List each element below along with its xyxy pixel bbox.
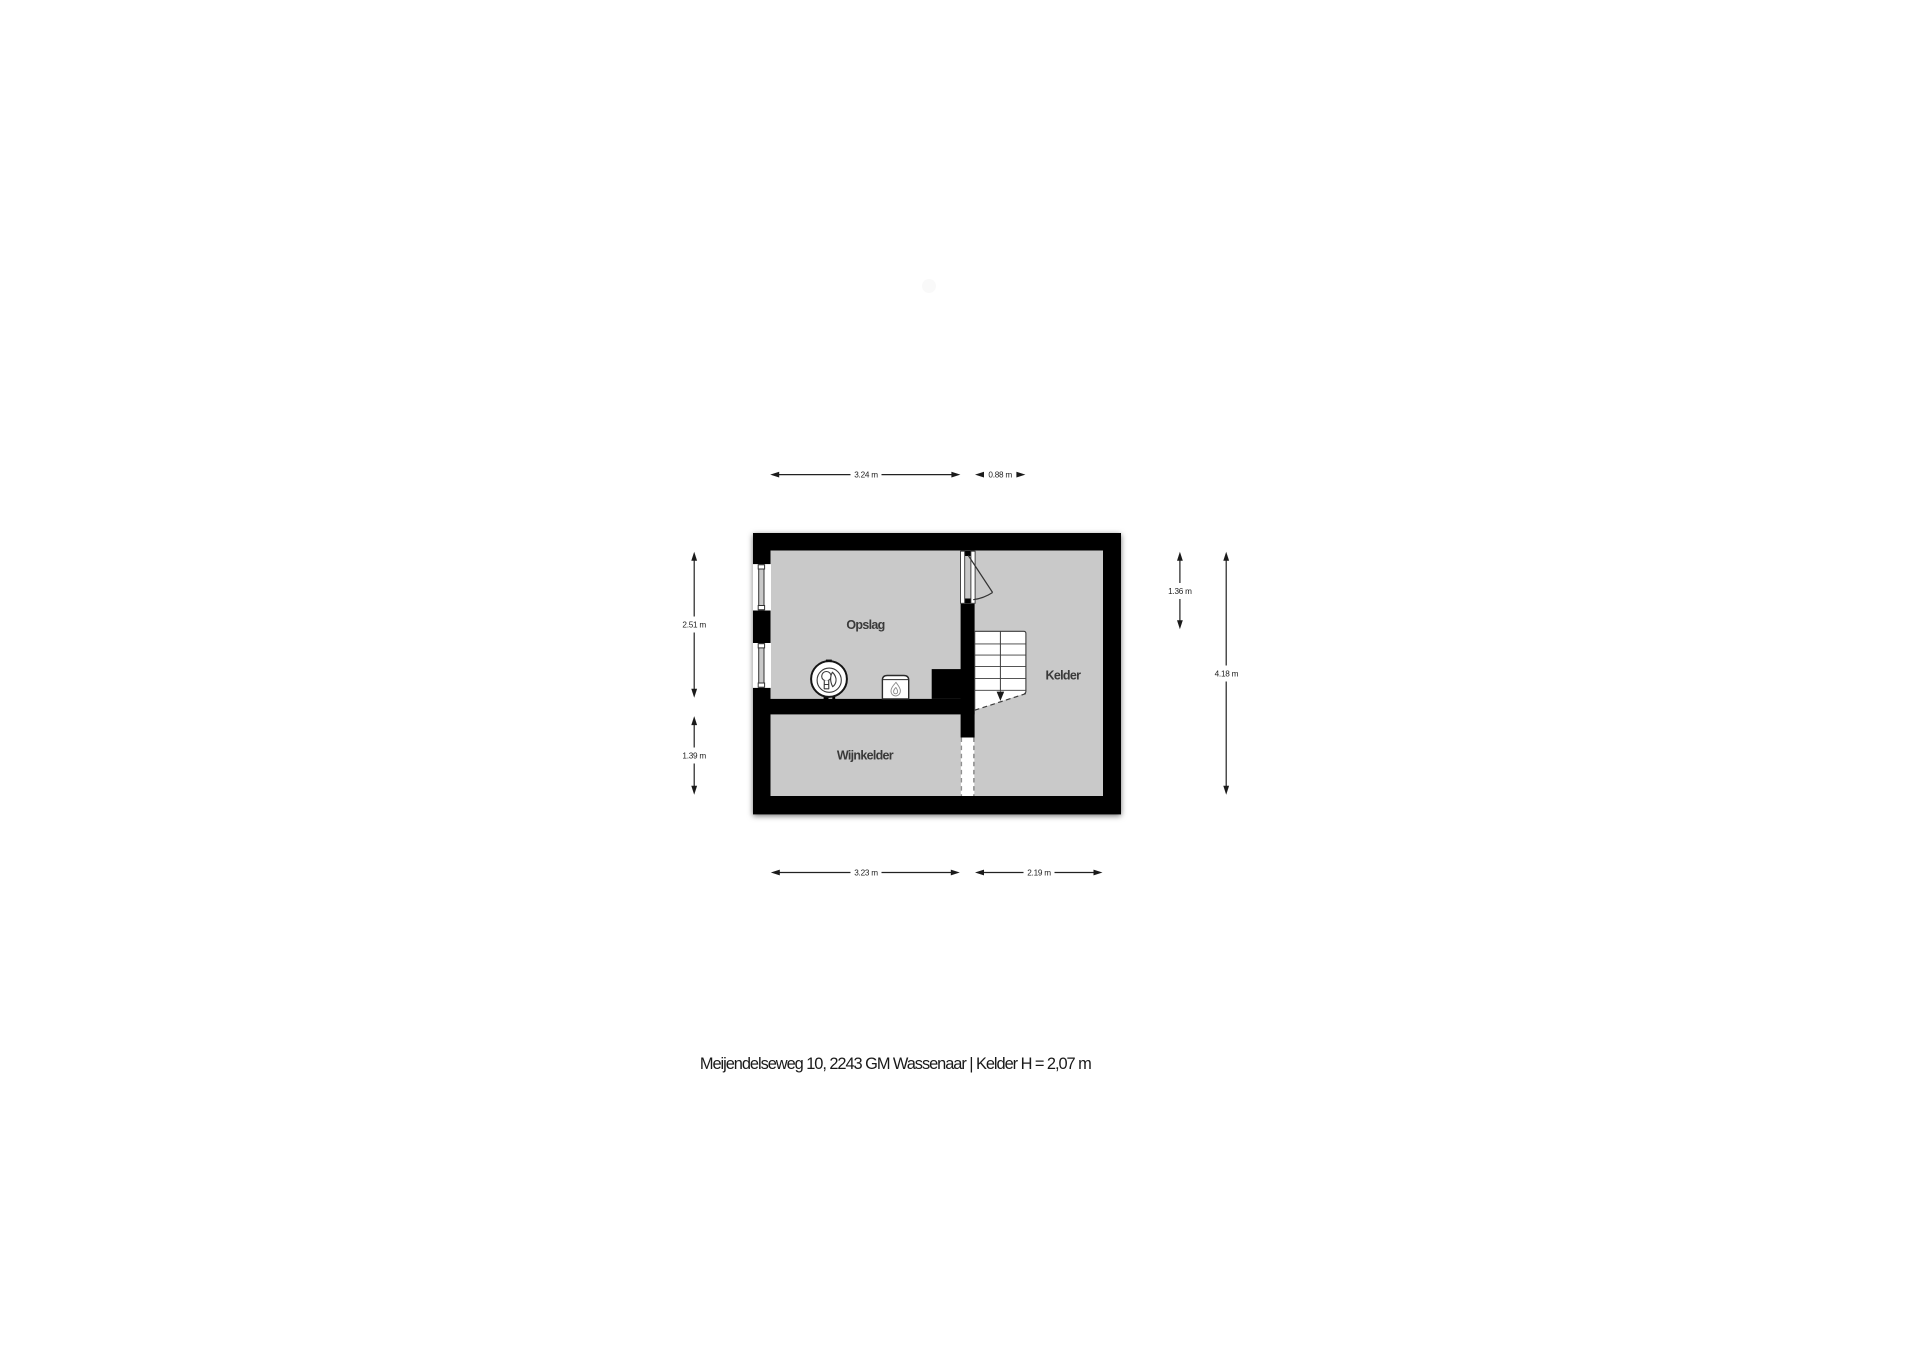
svg-text:3.23 m: 3.23 m xyxy=(854,869,878,878)
svg-text:Wijnkelder: Wijnkelder xyxy=(837,749,894,763)
svg-text:0.88 m: 0.88 m xyxy=(988,471,1012,480)
svg-text:1.39 m: 1.39 m xyxy=(682,752,706,761)
svg-text:2.51 m: 2.51 m xyxy=(682,621,706,630)
svg-text:Meijendelseweg 10, 2243 GM Was: Meijendelseweg 10, 2243 GM Wassenaar | K… xyxy=(700,1055,1091,1073)
svg-text:2.19 m: 2.19 m xyxy=(1027,869,1051,878)
svg-text:Kelder: Kelder xyxy=(1046,668,1082,682)
svg-text:3.24 m: 3.24 m xyxy=(854,471,878,480)
svg-text:Opslag: Opslag xyxy=(846,618,884,632)
svg-text:1.36 m: 1.36 m xyxy=(1168,587,1192,596)
svg-text:4.18 m: 4.18 m xyxy=(1215,670,1239,679)
